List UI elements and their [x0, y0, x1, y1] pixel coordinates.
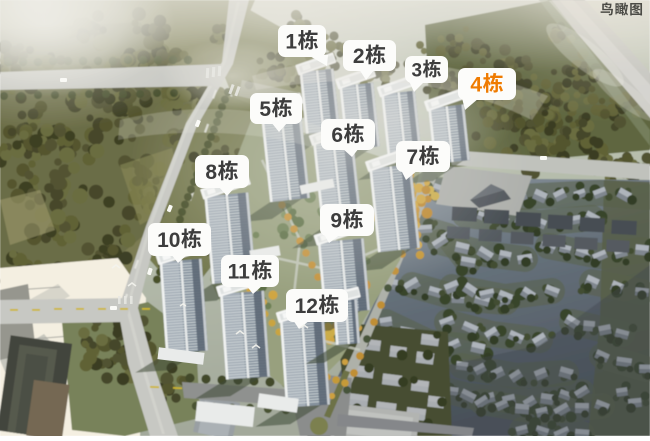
svg-text:12: 12: [295, 295, 318, 318]
svg-text:6: 6: [331, 124, 343, 147]
svg-text:10: 10: [157, 229, 180, 252]
svg-text:11: 11: [228, 261, 251, 284]
svg-text:9: 9: [330, 210, 342, 233]
svg-text:8: 8: [205, 161, 217, 184]
svg-text:2: 2: [353, 45, 365, 68]
svg-text:7: 7: [406, 146, 418, 169]
svg-text:1: 1: [285, 31, 297, 54]
svg-text:3: 3: [412, 60, 423, 81]
svg-text:4: 4: [470, 74, 482, 97]
svg-text:5: 5: [259, 98, 271, 121]
